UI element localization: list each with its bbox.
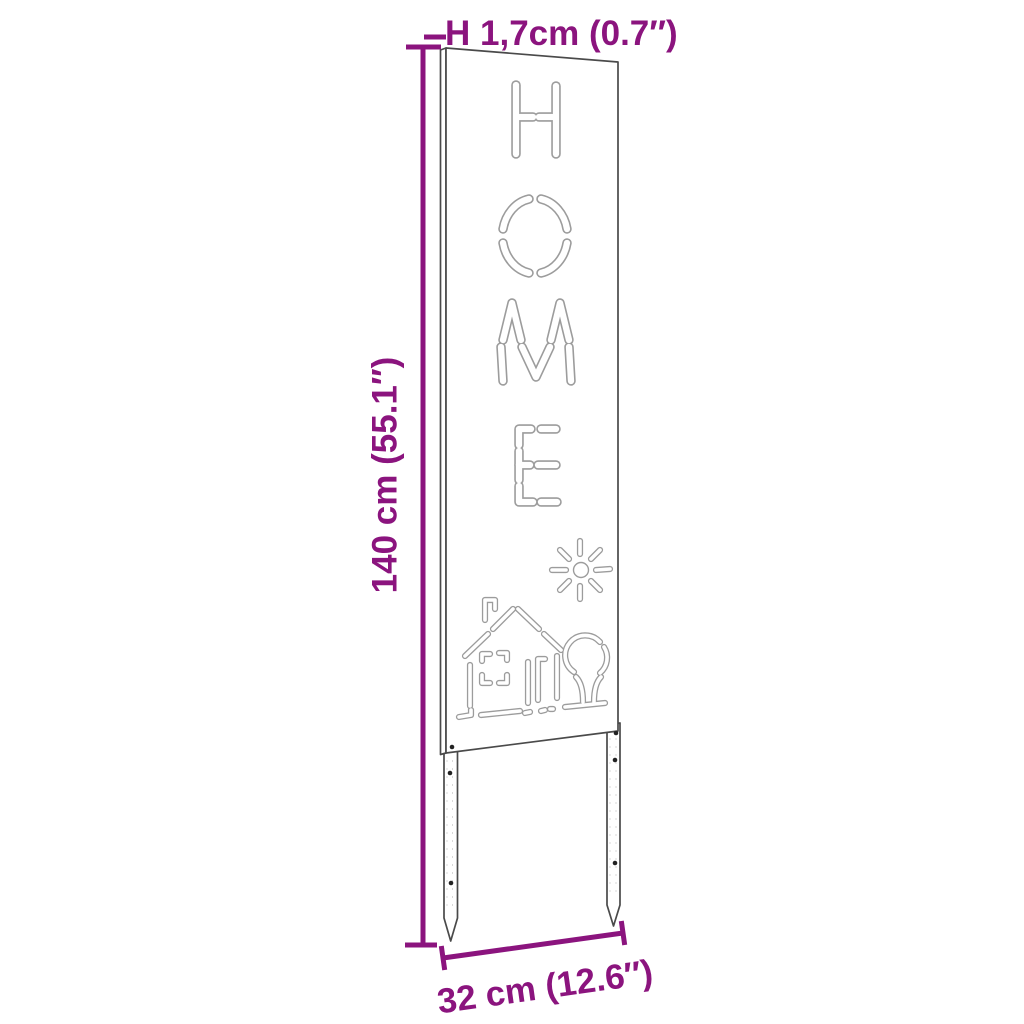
thickness-dimension-label: H 1,7cm (0.7″) [445,16,678,51]
rivets [448,731,619,886]
right-ground-stake [607,723,620,926]
width-dimension-right-cap [621,921,624,945]
width-dimension-left-cap [441,946,444,970]
width-dimension-line [443,933,623,958]
sign-illustration [0,0,1024,1024]
height-dimension-label: 140 cm (55.1″) [368,357,403,594]
sun-icon [574,563,589,578]
product-dimension-diagram: H 1,7cm (0.7″) 140 cm (55.1″) 32 cm (12.… [0,0,1024,1024]
